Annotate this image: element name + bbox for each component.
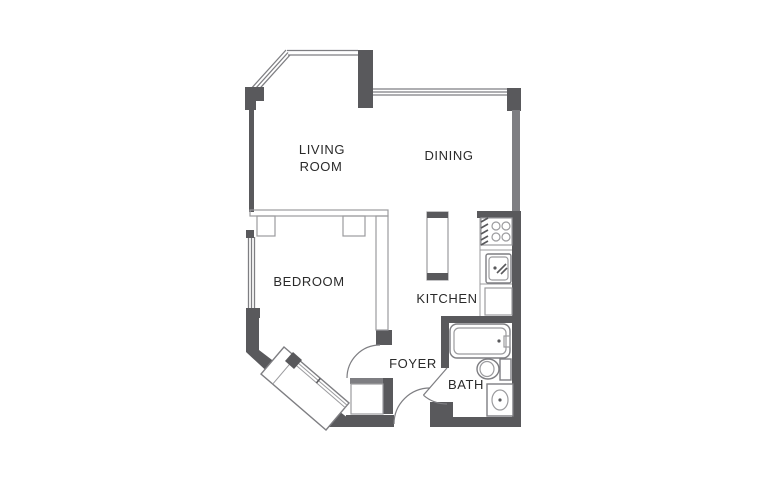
bedroom-door <box>347 345 383 384</box>
room-label-living-line1: LIVING <box>299 142 345 157</box>
foyer-closet <box>351 384 383 414</box>
room-label-bedroom: BEDROOM <box>273 274 344 289</box>
room-label-bath: BATH <box>448 377 484 392</box>
dining-window <box>373 89 507 95</box>
sliding-door-closet <box>261 347 349 430</box>
kitchen-sink <box>486 254 511 283</box>
vanity-sink <box>487 384 513 416</box>
room-label-kitchen: KITCHEN <box>416 291 477 306</box>
kitchen-cabinet <box>485 288 512 315</box>
bathtub <box>450 324 510 358</box>
bedroom-partition-walls <box>250 210 388 330</box>
bedroom-window <box>249 237 255 308</box>
room-label-dining: DINING <box>424 148 473 163</box>
stove <box>481 218 512 245</box>
burner-icon <box>502 233 510 241</box>
burner-icon <box>492 222 500 230</box>
floor-plan-svg: LIVING ROOM DINING BEDROOM KITCHEN FOYER… <box>0 0 768 480</box>
burner-icon <box>502 222 510 230</box>
bay-window <box>249 50 358 96</box>
room-label-foyer: FOYER <box>389 356 437 371</box>
burner-icon <box>492 233 500 241</box>
bath-door <box>423 368 447 404</box>
kitchen-island <box>427 212 448 280</box>
room-label-living-line2: ROOM <box>300 159 343 174</box>
floor-plan-page: LIVING ROOM DINING BEDROOM KITCHEN FOYER… <box>0 0 768 480</box>
